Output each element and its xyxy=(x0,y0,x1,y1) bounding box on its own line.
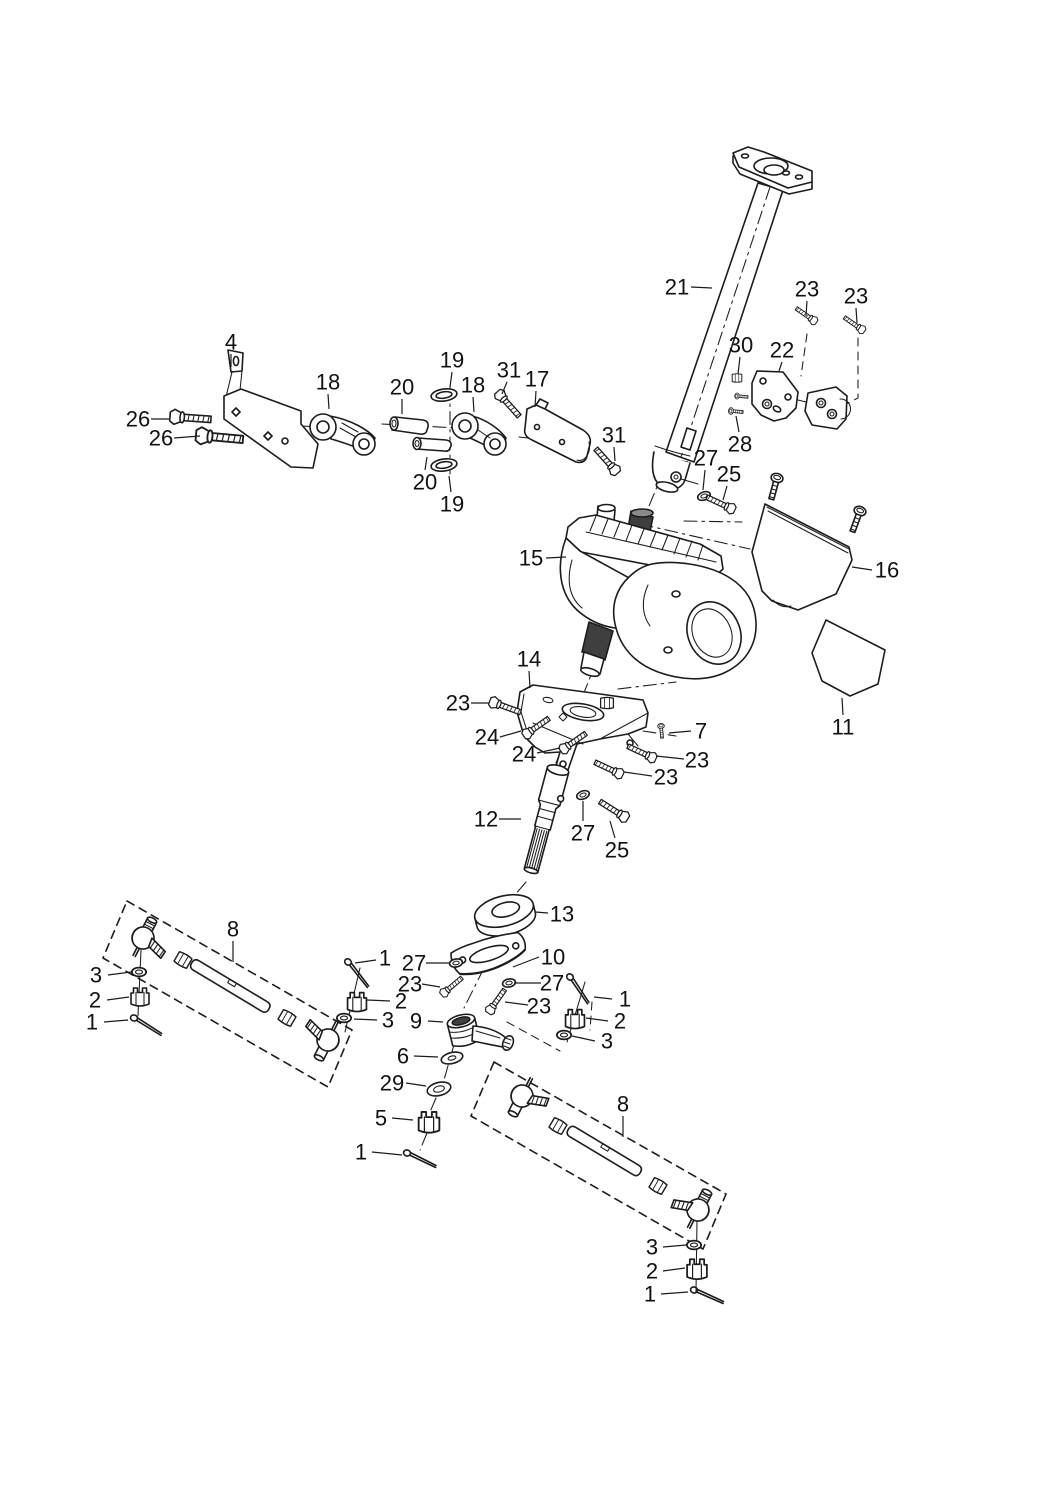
shield-16 xyxy=(752,504,852,610)
part-number-label: 16 xyxy=(875,558,899,583)
washer-3 xyxy=(687,1241,701,1250)
leader-line xyxy=(656,756,684,759)
bolt-31 xyxy=(591,445,622,477)
part-number-label: 28 xyxy=(728,432,752,457)
bolt-23 xyxy=(484,986,509,1016)
castle-nut-2 xyxy=(566,1010,585,1029)
part-number-label: 31 xyxy=(497,358,521,383)
leader-line xyxy=(414,1056,438,1057)
tie-rod-end xyxy=(502,1073,554,1127)
part-number-label: 1 xyxy=(355,1140,367,1165)
part-number-label: 8 xyxy=(617,1092,629,1117)
bolt-23 xyxy=(626,741,659,764)
leader-line xyxy=(614,447,615,461)
leader-line xyxy=(856,308,857,323)
pin-20-lower xyxy=(413,438,451,452)
screw-28 xyxy=(728,407,743,415)
tie-rod-end xyxy=(124,913,176,967)
leader-line xyxy=(852,567,872,570)
cover-plate-10 xyxy=(449,928,530,980)
part-number-label: 10 xyxy=(541,945,565,970)
steering-gearbox xyxy=(560,505,756,679)
leader-line xyxy=(107,997,129,1000)
leader-line xyxy=(669,731,691,733)
o-ring-27 xyxy=(576,789,591,801)
bolt-23 xyxy=(593,757,626,780)
leader-line xyxy=(535,912,548,913)
part-number-label: 25 xyxy=(717,462,741,487)
leader-line xyxy=(779,362,782,371)
castle-nut-2 xyxy=(131,988,149,1006)
cotter-pin-1 xyxy=(128,1014,164,1035)
leader-line xyxy=(738,357,740,374)
leader-line xyxy=(355,960,376,963)
shield-screw xyxy=(847,505,867,534)
nut-on-bracket xyxy=(601,697,614,708)
part-number-label: 1 xyxy=(644,1282,656,1307)
bolt-25 xyxy=(705,492,738,515)
leader-line xyxy=(610,821,615,838)
cotter-pin-1 xyxy=(340,957,374,987)
part-number-label: 2 xyxy=(646,1259,658,1284)
part-number-label: 3 xyxy=(382,1008,394,1033)
shield-screw xyxy=(766,472,784,501)
leader-line xyxy=(513,957,539,967)
shield-11 xyxy=(812,620,885,696)
part-number-label: 23 xyxy=(527,994,551,1019)
leader-line xyxy=(691,287,712,288)
part-number-label: 13 xyxy=(550,902,574,927)
column-flange xyxy=(733,147,812,194)
part-number-label: 19 xyxy=(440,348,464,373)
bolt-23 xyxy=(842,314,867,335)
pin-20-upper xyxy=(390,417,428,434)
leader-line xyxy=(425,457,427,470)
cotter-pin-1 xyxy=(689,1286,725,1303)
part-number-label: 25 xyxy=(605,838,629,863)
cotter-pin-1 xyxy=(562,972,595,1003)
part-number-label: 27 xyxy=(571,821,595,846)
castle-nut-5 xyxy=(419,1112,440,1133)
parts-diagram-page: 2123233022284262618201918311731201927251… xyxy=(0,0,1040,1500)
cotter-pin-1 xyxy=(402,1149,438,1167)
part-number-label: 27 xyxy=(540,971,564,996)
o-ring-27 xyxy=(502,978,516,988)
part-number-label: 18 xyxy=(316,370,340,395)
uj-yoke-right xyxy=(452,413,506,455)
part-number-label: 31 xyxy=(602,423,626,448)
part-number-label: 23 xyxy=(844,284,868,309)
part-number-label: 24 xyxy=(475,725,499,750)
nut-30 xyxy=(732,374,742,382)
leader-line xyxy=(108,972,131,975)
part-number-label: 2 xyxy=(614,1009,626,1034)
part-number-label: 17 xyxy=(525,367,549,392)
part-number-label: 18 xyxy=(461,373,485,398)
part-number-label: 5 xyxy=(375,1106,387,1131)
part-number-label: 9 xyxy=(410,1009,422,1034)
bolt-25 xyxy=(597,796,631,824)
coupler-sleeve xyxy=(525,399,591,462)
leader-line xyxy=(406,1083,426,1086)
bolt-23 xyxy=(438,974,465,999)
screw-28 xyxy=(734,393,748,400)
part-number-label: 21 xyxy=(665,275,689,300)
pitman-arm-9 xyxy=(446,1012,515,1052)
part-number-label: 20 xyxy=(390,375,414,400)
bearing-13 xyxy=(471,889,539,941)
leader-line xyxy=(500,731,521,737)
part-number-label: 27 xyxy=(694,446,718,471)
leader-line xyxy=(736,416,739,432)
leader-line xyxy=(392,1118,413,1120)
part-number-label: 2 xyxy=(395,989,407,1014)
leader-line xyxy=(842,698,843,715)
part-number-label: 23 xyxy=(685,748,709,773)
part-number-label: 3 xyxy=(90,963,102,988)
exploded-diagram-canvas: 2123233022284262618201918311731201927251… xyxy=(0,0,1040,1500)
part-number-label: 30 xyxy=(729,333,753,358)
column-clamp-piece xyxy=(798,387,851,429)
leader-line xyxy=(422,984,440,987)
part-number-label: 4 xyxy=(225,330,237,355)
part-number-label: 23 xyxy=(446,691,470,716)
part-number-label: 11 xyxy=(832,715,855,740)
leader-line xyxy=(624,772,652,776)
leader-line xyxy=(572,1036,595,1041)
part-number-label: 3 xyxy=(646,1235,658,1260)
uj-yoke-left xyxy=(310,414,375,455)
washer-3 xyxy=(337,1014,351,1023)
part-number-label: 26 xyxy=(149,426,173,451)
part-number-label: 15 xyxy=(519,546,543,571)
leader-line xyxy=(473,397,474,412)
part-number-label: 7 xyxy=(695,719,707,744)
jam-nut xyxy=(278,1009,297,1027)
ring-19-upper xyxy=(430,387,457,403)
leader-line xyxy=(367,1000,390,1001)
part-number-label: 6 xyxy=(397,1044,409,1069)
jam-nut xyxy=(649,1177,668,1195)
bolt-26 xyxy=(195,427,243,448)
part-number-label: 14 xyxy=(517,647,541,672)
part-number-label: 29 xyxy=(380,1071,404,1096)
castle-nut-2 xyxy=(348,993,367,1012)
leader-line xyxy=(661,1292,688,1294)
leader-line xyxy=(104,1020,128,1022)
washer-3 xyxy=(132,968,146,977)
washer-29 xyxy=(426,1080,452,1098)
jam-nut xyxy=(549,1117,568,1135)
leader-line xyxy=(505,1002,528,1005)
column-bracket xyxy=(224,350,318,468)
screw-7 xyxy=(657,723,665,738)
bolt-26 xyxy=(169,409,211,427)
leader-line xyxy=(663,1245,686,1247)
leader-line xyxy=(594,997,612,999)
leader-line xyxy=(723,486,727,500)
leader-line xyxy=(529,671,530,688)
part-number-label: 26 xyxy=(126,407,150,432)
support-bracket-22 xyxy=(752,371,798,421)
washer-3 xyxy=(557,1031,571,1040)
bolt-31 xyxy=(493,388,524,420)
part-number-label: 1 xyxy=(86,1010,98,1035)
part-number-label: 23 xyxy=(795,277,819,302)
leader-line xyxy=(703,470,705,490)
leader-line xyxy=(449,476,451,492)
leader-line xyxy=(372,1152,402,1155)
leader-line xyxy=(328,394,329,409)
part-number-label: 8 xyxy=(227,917,239,942)
part-number-label: 22 xyxy=(770,338,794,363)
washer-6 xyxy=(440,1050,464,1066)
steering-shaft-12 xyxy=(520,763,572,876)
part-number-label: 12 xyxy=(474,807,498,832)
leader-line xyxy=(586,1018,608,1021)
leader-line xyxy=(354,1019,377,1020)
leader-line xyxy=(428,1021,443,1022)
tie-rod-kit-box-right xyxy=(471,1062,726,1249)
leader-line xyxy=(450,372,452,387)
part-number-label: 20 xyxy=(413,470,437,495)
part-number-label: 1 xyxy=(379,946,391,971)
leader-line xyxy=(663,1268,685,1271)
part-number-label: 19 xyxy=(440,492,464,517)
tie-rod-end xyxy=(666,1178,718,1232)
part-number-label: 24 xyxy=(512,742,536,767)
part-number-label: 3 xyxy=(601,1029,613,1054)
part-number-label: 23 xyxy=(654,765,678,790)
castle-nut-2 xyxy=(687,1259,707,1279)
jam-nut xyxy=(174,951,193,969)
